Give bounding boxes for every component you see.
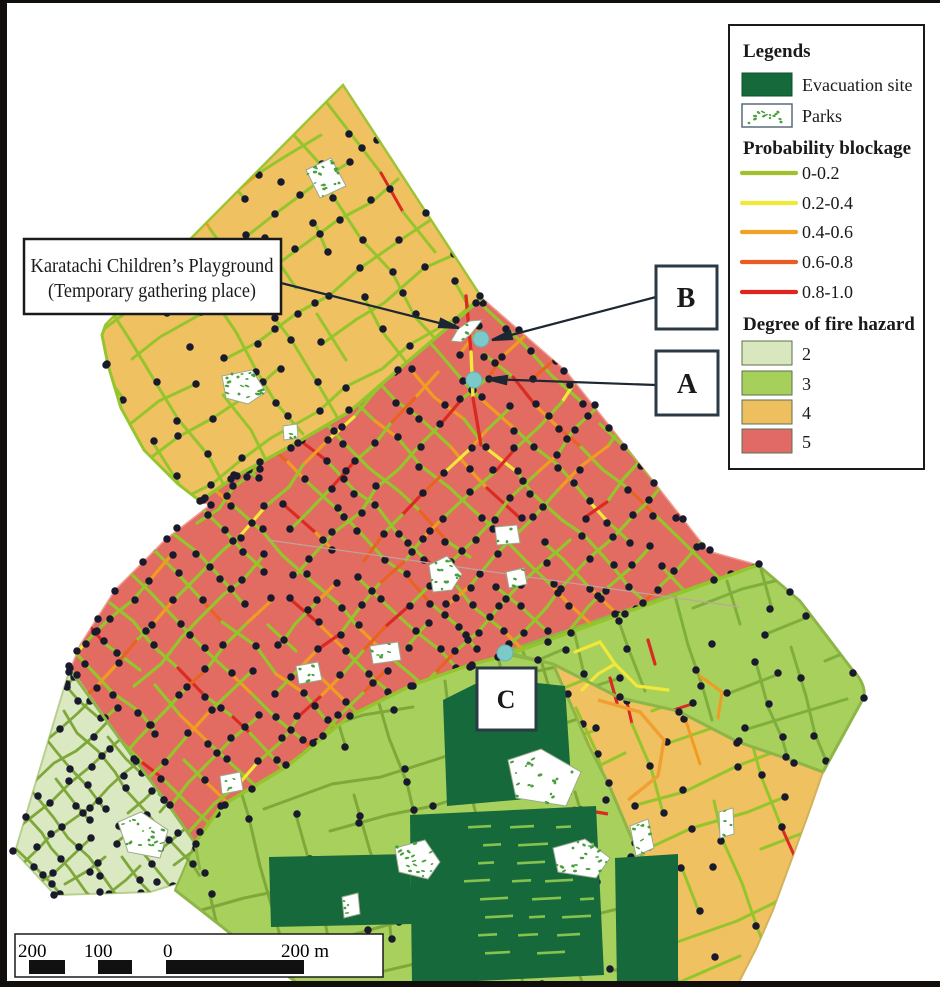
svg-text:100: 100 [84, 941, 113, 962]
svg-text:3: 3 [802, 374, 811, 394]
svg-text:5: 5 [802, 432, 811, 452]
svg-text:0.8-1.0: 0.8-1.0 [802, 282, 853, 302]
svg-text:0.4-0.6: 0.4-0.6 [802, 222, 853, 242]
svg-text:200: 200 [18, 941, 47, 962]
svg-text:Legends: Legends [743, 41, 811, 62]
svg-text:2: 2 [802, 344, 811, 364]
svg-text:Evacuation site: Evacuation site [802, 75, 912, 95]
svg-text:0.2-0.4: 0.2-0.4 [802, 193, 853, 213]
svg-text:B: B [677, 283, 696, 314]
svg-text:0-0.2: 0-0.2 [802, 163, 840, 183]
svg-text:200 m: 200 m [281, 941, 329, 962]
svg-text:C: C [497, 685, 516, 714]
svg-text:0: 0 [163, 941, 173, 962]
svg-text:(Temporary gathering place): (Temporary gathering place) [48, 280, 256, 302]
svg-text:A: A [677, 369, 698, 400]
svg-text:Degree of fire hazard: Degree of fire hazard [743, 314, 915, 335]
svg-text:Parks: Parks [802, 106, 842, 126]
svg-text:Karatachi Children’s Playgroun: Karatachi Children’s Playground [31, 255, 274, 277]
svg-text:Probability blockage: Probability blockage [743, 138, 911, 159]
svg-text:4: 4 [802, 403, 811, 423]
svg-text:0.6-0.8: 0.6-0.8 [802, 252, 853, 272]
